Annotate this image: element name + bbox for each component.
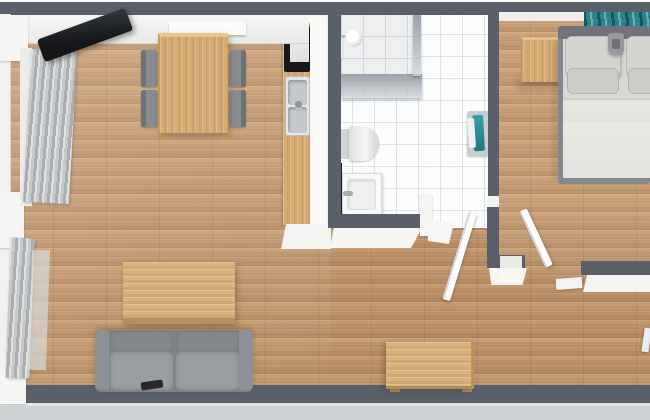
reading-lamp-core (612, 39, 620, 49)
wall-bedroom-south-b-face (583, 275, 650, 292)
shower-glass-side (413, 14, 421, 76)
sofa-armrest-right (239, 330, 253, 390)
console-table (386, 342, 474, 389)
sofa-armrest-left (95, 330, 109, 390)
sink-faucet (295, 101, 302, 108)
kitchen-wall-face (309, 14, 330, 240)
kitchen-cabinet-front (281, 224, 331, 249)
pillow-small (628, 68, 650, 94)
wall-bedroom-west (488, 10, 499, 207)
dining-chair (141, 90, 158, 127)
sofa-back-cushion (176, 331, 239, 353)
wall-bathroom-south-face (330, 228, 422, 248)
bedroom-threshold (500, 256, 522, 282)
dining-chair (229, 50, 246, 87)
bathroom-threshold (426, 220, 454, 244)
window-sill-bottom (0, 374, 26, 404)
exterior-highlight (0, 403, 650, 406)
wall-bedroom-south-b (581, 261, 650, 275)
wall-bathroom-south (328, 214, 424, 228)
bedroom-jamb-notch (488, 196, 499, 207)
sink-basin-bottom (288, 107, 307, 133)
door-strike-piece (556, 277, 583, 290)
sofa-seat-cushion (176, 352, 239, 390)
vanity-faucet (343, 191, 353, 196)
wall-bedroom-west-lower (487, 207, 499, 257)
dining-table (158, 33, 228, 133)
sofa-back-cushion (110, 331, 173, 353)
floor-plan-scene (0, 0, 650, 420)
wall-bathroom-west (328, 12, 341, 228)
pillow-small (567, 68, 619, 94)
shower-head-icon (345, 29, 363, 47)
curtain-top (23, 49, 77, 204)
coffee-table (123, 262, 235, 324)
dining-chair (141, 50, 158, 87)
shower-glass-panel (341, 74, 422, 98)
dining-chair (229, 90, 246, 127)
